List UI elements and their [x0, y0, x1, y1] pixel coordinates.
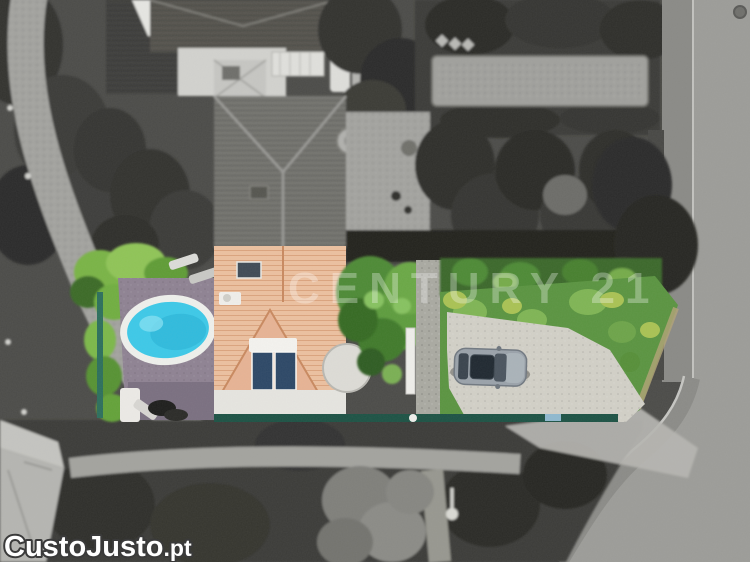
watermark-custojusto: CustoJusto.pt	[4, 531, 192, 562]
watermark-agency: CENTURY 21	[288, 264, 659, 313]
photo-canvas: CENTURY 21 CustoJusto.pt	[0, 0, 750, 562]
watermark-site-suffix: .pt	[164, 535, 192, 561]
watermark-site-main: CustoJusto	[4, 531, 164, 562]
aerial-photo: CENTURY 21 CustoJusto.pt	[0, 0, 750, 562]
